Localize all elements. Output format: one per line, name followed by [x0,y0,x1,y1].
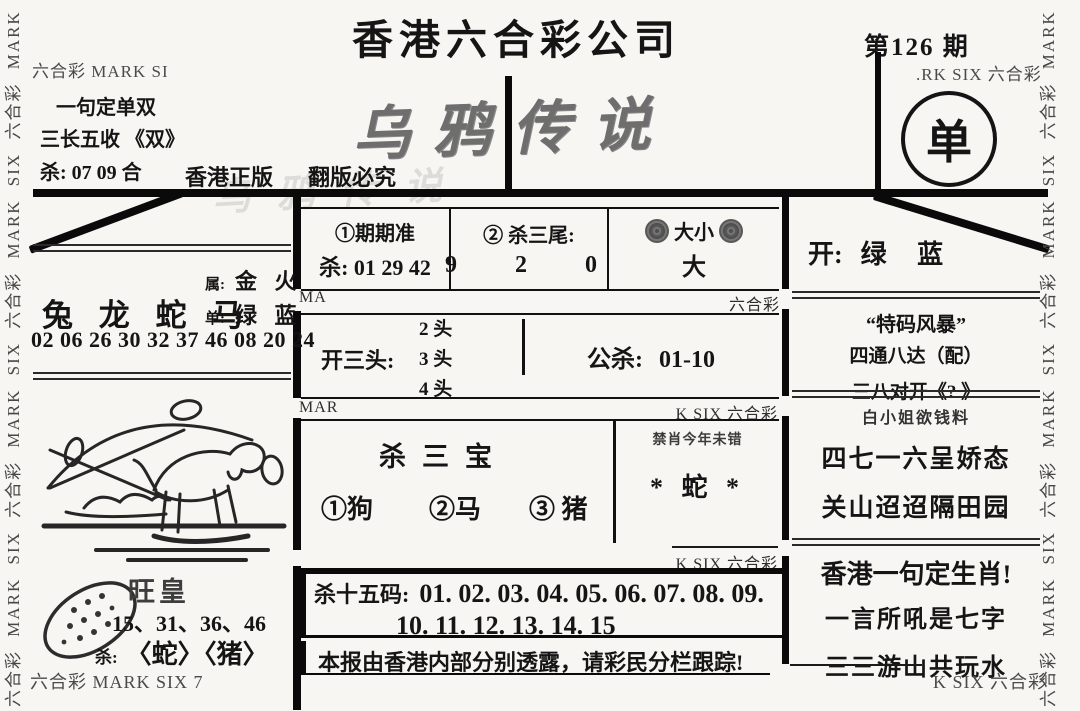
mascot-line-art [36,390,292,566]
center-footer-note: 本报由香港内部分别透露，请彩民分栏跟踪! [306,641,770,677]
oneline-oddeven-box: 一句定单双 三长五收 《双》 杀: 07 09 合 [40,92,190,189]
left-numbers-row: 02 06 26 30 32 37 46 08 20 24 [31,327,315,353]
divider-notch [291,550,303,566]
single-value: 绿 蓝 [229,303,303,328]
center-row1: ①期期准 杀: 01 29 42 ② 杀三尾: 9 2 0 大小 大 [301,207,779,291]
storm-title: “特码风暴” [792,308,1040,337]
right-col-rule3 [792,538,1040,546]
strip3-rule [672,546,778,548]
sha15-line2: 10. 11. 12. 13. 14. 15 [306,611,782,641]
sha15-label: 杀十五码: [314,582,409,607]
storm-line1: 四通八达（配） [792,341,1040,368]
qiqizhun-kill: 杀: 01 29 42 [319,250,431,282]
circled-2-icon: ② [483,225,503,247]
cell-shasanbao: 杀三宝 ①狗 ②马 ③ 猪 [301,421,613,543]
divider-notch [780,289,791,309]
kaisantou-opt1: 2 头 [419,314,452,341]
phrase-line1: 一言所吼是七字 [792,599,1040,634]
edition-note-left: 香港正版 [185,160,273,192]
left-col-rule-top [33,244,291,252]
strip1-left: MA [299,289,327,307]
daxiao-title: 大小 [674,222,714,244]
result-single-circle: 单 [901,91,997,187]
stylized-title: 乌鸦传说 [351,76,674,171]
single-label: 单: [205,311,225,327]
sha15-line1: 01. 02. 03. 04. 05. 06. 07. 08. 09. [413,579,764,608]
shasanbao-item2: ②马 [429,489,481,526]
oneline-kill: 杀: 07 09 合 [40,157,190,189]
center-row4: 杀十五码: 01. 02. 03. 04. 05. 06. 07. 08. 09… [298,568,782,638]
center-row5: 本报由香港内部分别透露，请彩民分栏跟踪! [298,641,770,675]
qiqizhun-title: 期期准 [355,223,415,245]
strip1-right: 六合彩 [700,291,780,315]
header-vline-left [505,76,512,191]
wanghuang-kill-row: 杀: 〈蛇〉〈猪〉 [95,634,269,671]
cell-daxiao: 大小 大 [607,209,779,289]
open-colors-row: 开: 绿 蓝 [808,234,955,271]
center-row3: 杀三宝 ①狗 ②马 ③ 猪 禁肖今年未错 * 蛇 * [301,419,779,543]
divider-bar-right [782,196,789,664]
page-title: 香港六合彩公司 [352,6,681,66]
shasanwei-title: 杀三尾: [508,225,575,247]
cell-gongsha: 公杀: 01-10 [525,315,777,397]
lady-title: 白小姐欲钱料 [792,404,1040,428]
header-rule [33,189,1048,197]
shasanwei-value: 9 2 0 [435,252,623,279]
oneline-title: 一句定单双 [40,92,190,124]
header-brand-right: .RK SIX 六合彩 [916,60,1042,85]
header-vline-right [875,52,881,191]
lady-line1: 四七一六呈娇态 [792,439,1040,475]
center-row2: 开三头: 2 头 3 头 4 头 公杀: 01-10 [301,313,779,399]
kaisantou-label: 开三头: [321,343,394,375]
rosette-stamp-icon [719,219,743,243]
header-brand-left: 六合彩 MARK SI [32,57,169,82]
edition-note-right: 翻版必究 [308,160,396,192]
shasanbao-item1: ①狗 [321,489,373,526]
cell-shasanwei: ② 杀三尾: 9 2 0 [449,209,607,289]
cell-qiqizhun: ①期期准 杀: 01 29 42 [301,209,449,289]
kaisantou-opt3: 4 头 [419,374,452,401]
side-brand-left: 六合彩 MARK SIX 六合彩 MARK SIX 六合彩 MARK SIX 六… [0,7,28,707]
left-col-rule-mid [33,372,291,380]
kaisantou-opt2: 3 头 [419,344,452,371]
mascot-drawing [36,390,292,566]
phrase-block: 香港一句定生肖! 一言所吼是七字 三三游山共玩水 [792,554,1040,682]
right-col-rule2 [792,390,1040,398]
gongsha-value: 01-10 [649,347,715,373]
oneline-pick: 三长五收 《双》 [40,124,190,156]
wanghuang-kill-value: 〈蛇〉〈猪〉 [122,640,269,669]
right-col-bottom-rule [790,664,922,666]
lady-line2: 关山迢迢隔田园 [792,488,1040,524]
footer-brand-left: 六合彩 MARK SIX 7 [30,668,204,694]
open-label: 开: [808,240,843,269]
gongsha-label: 公杀: [587,347,643,373]
right-col-rule1 [792,291,1040,299]
rosette-stamp-icon [645,219,669,243]
lady-block: 白小姐欲钱料 四七一六呈娇态 关山迢迢隔田园 [792,404,1040,524]
jinxiao-note: 禁肖今年未错 [616,429,779,449]
divider-notch [780,396,791,416]
circled-1-icon: ① [335,223,355,245]
result-single-label: 单 [926,106,972,172]
wanghuang-title: 旺皇 [128,570,190,609]
cell-kaisantou: 开三头: 2 头 3 头 4 头 [301,315,522,397]
lottery-tipsheet-page: 香港六合彩公司 第126 期 六合彩 MARK SI .RK SIX 六合彩 乌… [0,0,1080,711]
phrase-title: 香港一句定生肖! [792,554,1040,591]
divider-notch [780,540,791,556]
zodiac-single-row: 单: 绿 蓝 [205,298,303,330]
daxiao-value: 大 [682,247,706,282]
footer-brand-right: K SIX 六合彩 [933,668,1047,694]
cell-jinxiao: 禁肖今年未错 * 蛇 * [616,421,779,543]
wanghuang-kill-label: 杀: [95,648,118,667]
shasanbao-title: 杀三宝 [379,435,508,474]
open-value: 绿 蓝 [847,240,956,269]
jinxiao-value: * 蛇 * [616,467,779,504]
strip2-left: MAR [299,399,338,417]
shasanbao-item3: ③ 猪 [529,489,588,526]
